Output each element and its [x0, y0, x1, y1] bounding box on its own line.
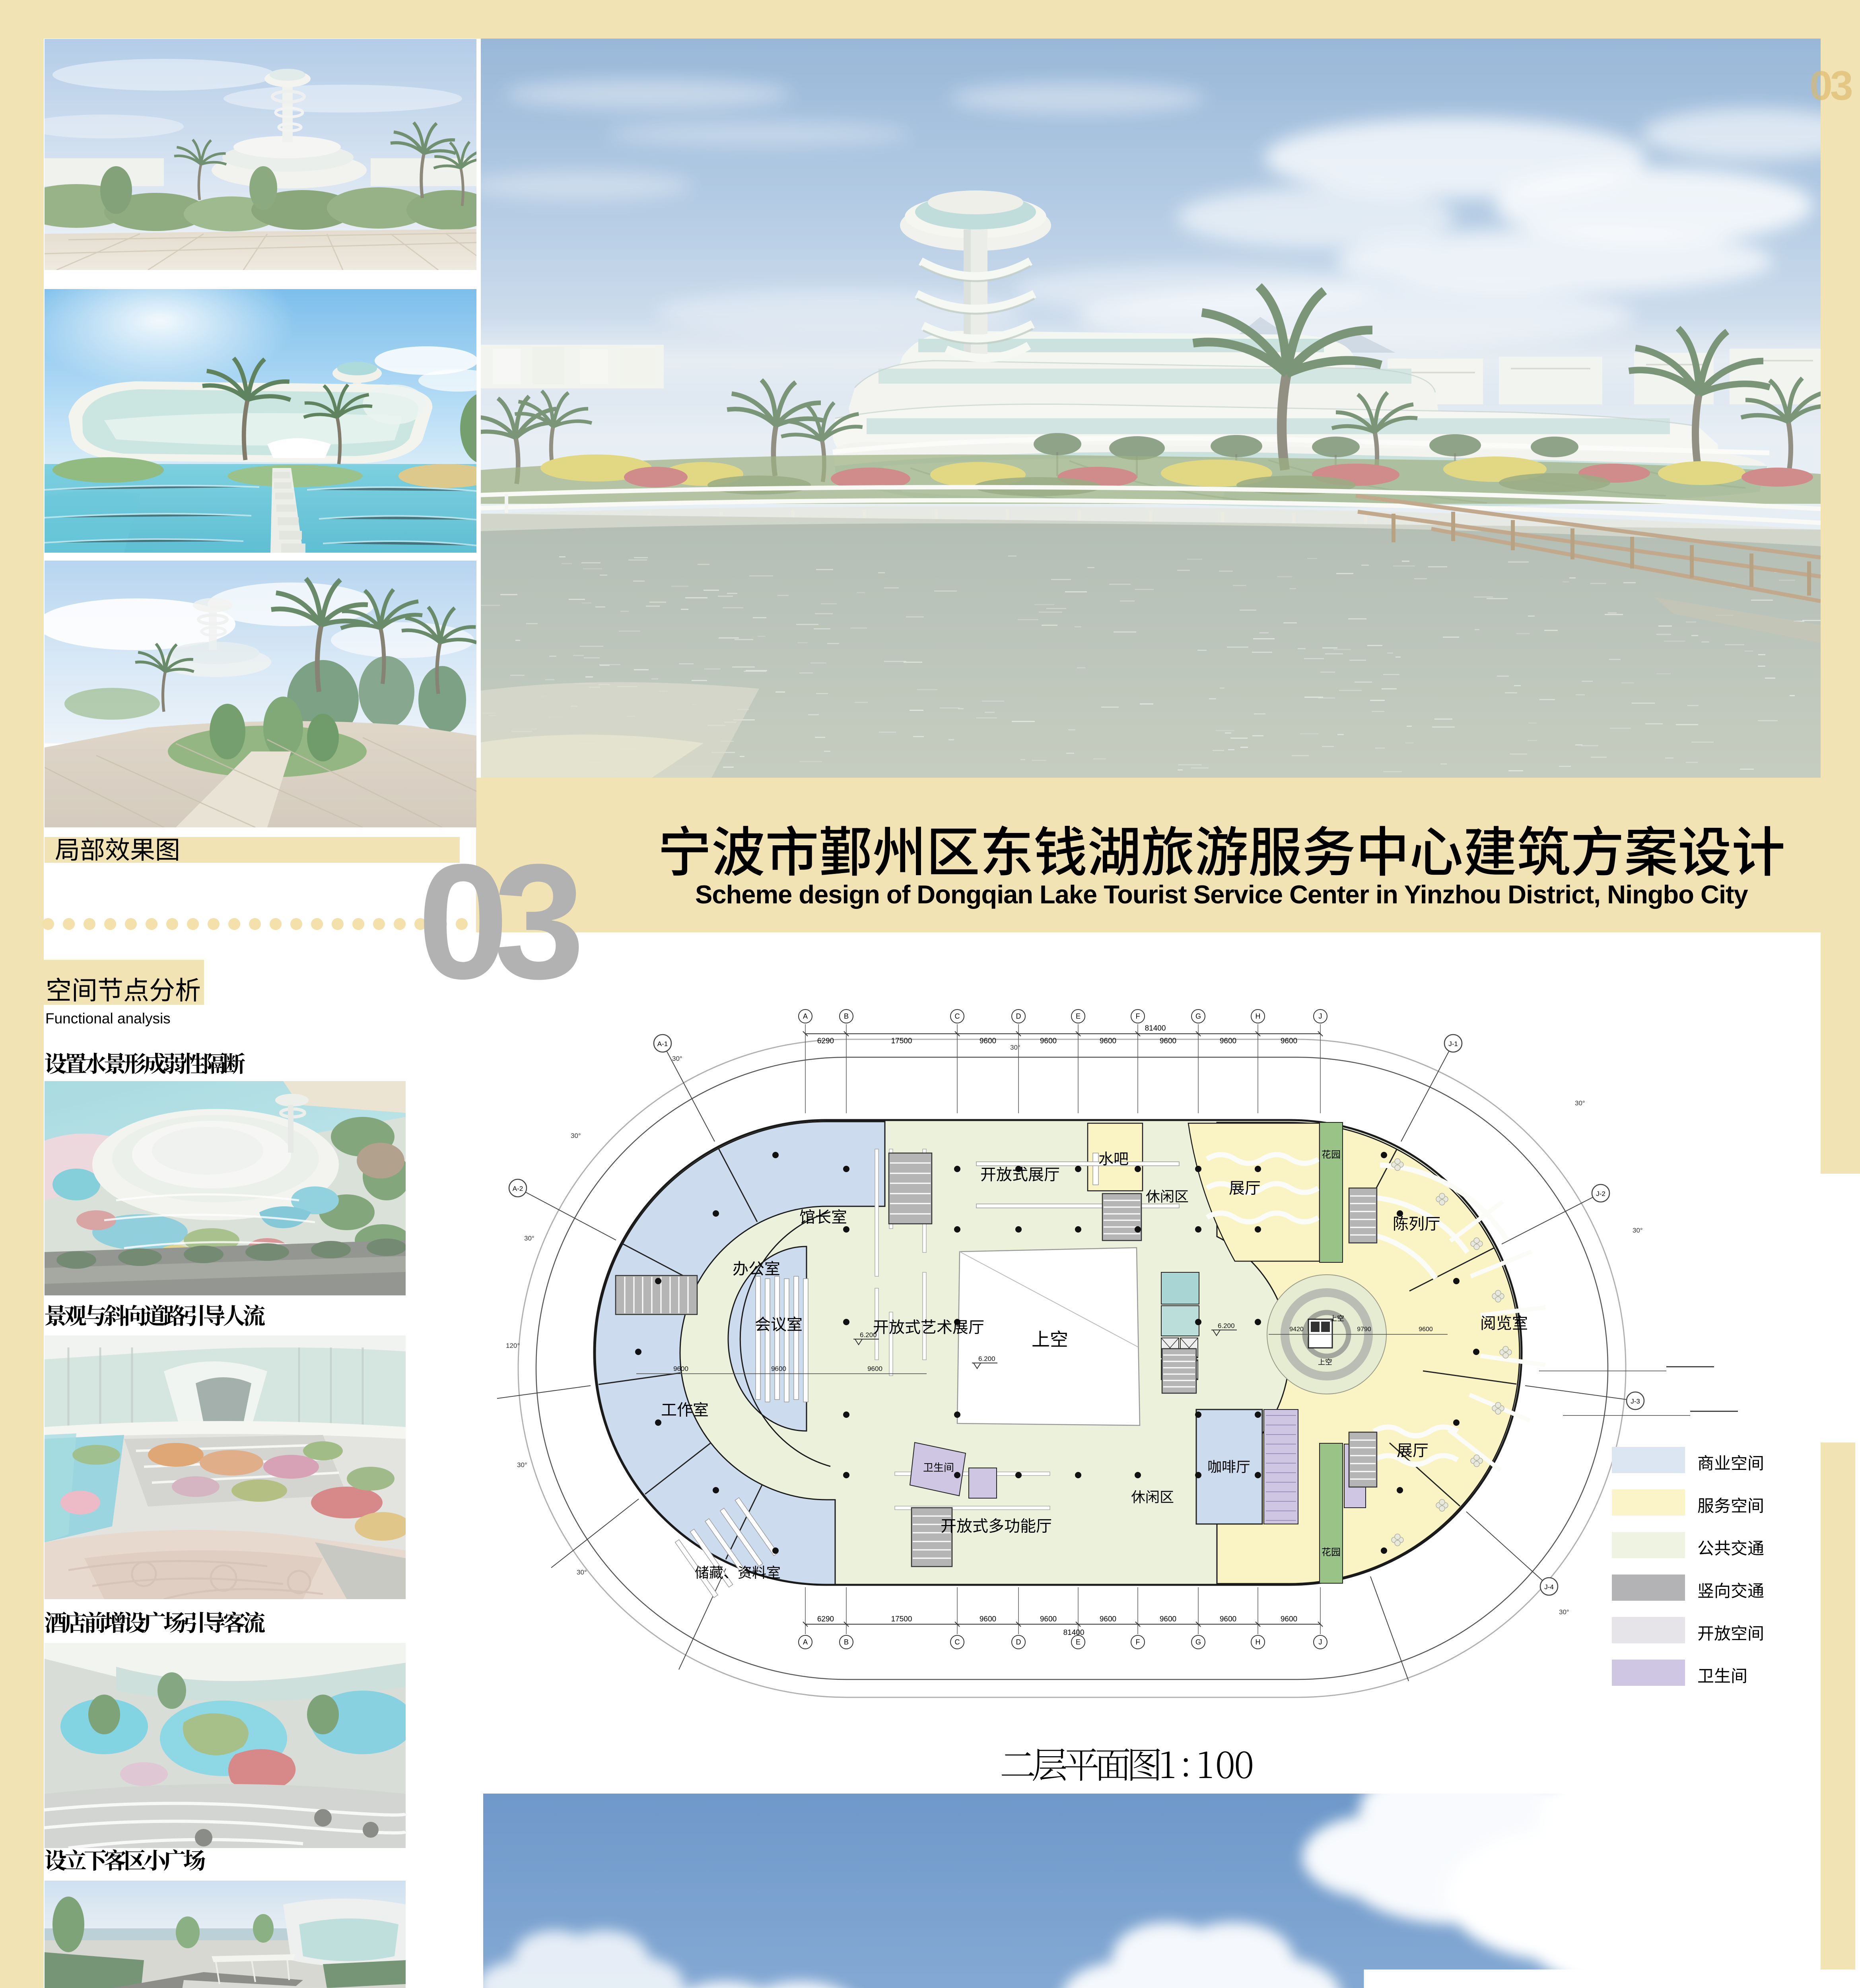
svg-text:F: F [1136, 1638, 1140, 1646]
svg-text:J: J [1319, 1638, 1322, 1646]
svg-text:H: H [1256, 1012, 1261, 1020]
svg-text:9600: 9600 [1419, 1326, 1433, 1333]
svg-text:C: C [955, 1012, 960, 1020]
svg-text:6.200: 6.200 [978, 1355, 995, 1363]
svg-text:C: C [955, 1638, 960, 1646]
svg-text:D: D [1016, 1012, 1021, 1020]
svg-text:H: H [1256, 1638, 1261, 1646]
svg-text:9600: 9600 [1220, 1037, 1236, 1045]
svg-text:9600: 9600 [673, 1365, 688, 1373]
svg-text:6290: 6290 [817, 1615, 834, 1623]
svg-text:17500: 17500 [891, 1037, 912, 1045]
svg-text:A: A [803, 1012, 808, 1020]
svg-text:9600: 9600 [867, 1365, 882, 1373]
svg-text:30°: 30° [1559, 1608, 1569, 1616]
svg-text:30°: 30° [524, 1235, 534, 1242]
svg-text:9600: 9600 [1281, 1037, 1297, 1045]
svg-text:6.200: 6.200 [860, 1331, 877, 1339]
svg-text:A-1: A-1 [657, 1040, 668, 1048]
svg-text:9600: 9600 [1281, 1615, 1297, 1623]
svg-text:9600: 9600 [1100, 1037, 1116, 1045]
svg-text:6290: 6290 [817, 1037, 834, 1045]
svg-text:30°: 30° [571, 1132, 581, 1140]
svg-text:J-2: J-2 [1596, 1190, 1605, 1198]
svg-text:J-4: J-4 [1544, 1583, 1554, 1591]
svg-text:9600: 9600 [1220, 1615, 1236, 1623]
svg-text:E: E [1076, 1012, 1081, 1020]
svg-text:30°: 30° [577, 1569, 587, 1576]
svg-text:81400: 81400 [1145, 1024, 1166, 1033]
svg-text:9600: 9600 [1100, 1615, 1116, 1623]
svg-text:6.200: 6.200 [1218, 1322, 1235, 1330]
svg-text:G: G [1195, 1012, 1201, 1020]
svg-text:9600: 9600 [1160, 1615, 1176, 1623]
svg-text:9420: 9420 [1289, 1326, 1304, 1333]
svg-text:30°: 30° [1010, 1044, 1020, 1051]
svg-text:9600: 9600 [1040, 1615, 1057, 1623]
svg-text:120°: 120° [506, 1342, 520, 1349]
svg-text:E: E [1076, 1638, 1081, 1646]
svg-text:D: D [1016, 1638, 1021, 1646]
svg-text:9600: 9600 [980, 1615, 996, 1623]
svg-text:17500: 17500 [891, 1615, 912, 1623]
svg-text:30°: 30° [517, 1461, 527, 1469]
svg-text:J-1: J-1 [1448, 1040, 1458, 1048]
svg-text:B: B [844, 1638, 849, 1646]
svg-text:30°: 30° [672, 1055, 682, 1062]
svg-text:9600: 9600 [1160, 1037, 1176, 1045]
svg-text:B: B [844, 1012, 849, 1020]
svg-text:81400: 81400 [1063, 1629, 1085, 1637]
svg-text:F: F [1136, 1012, 1140, 1020]
svg-text:A: A [803, 1638, 808, 1646]
svg-text:9790: 9790 [1357, 1326, 1371, 1333]
svg-text:G: G [1195, 1638, 1201, 1646]
svg-text:9600: 9600 [980, 1037, 996, 1045]
svg-text:30°: 30° [1575, 1099, 1585, 1107]
svg-text:30°: 30° [1633, 1227, 1643, 1234]
svg-text:J: J [1319, 1012, 1322, 1020]
svg-text:9600: 9600 [1040, 1037, 1057, 1045]
svg-text:9600: 9600 [771, 1365, 786, 1373]
svg-text:J-3: J-3 [1631, 1398, 1640, 1405]
svg-text:A-2: A-2 [513, 1185, 523, 1192]
